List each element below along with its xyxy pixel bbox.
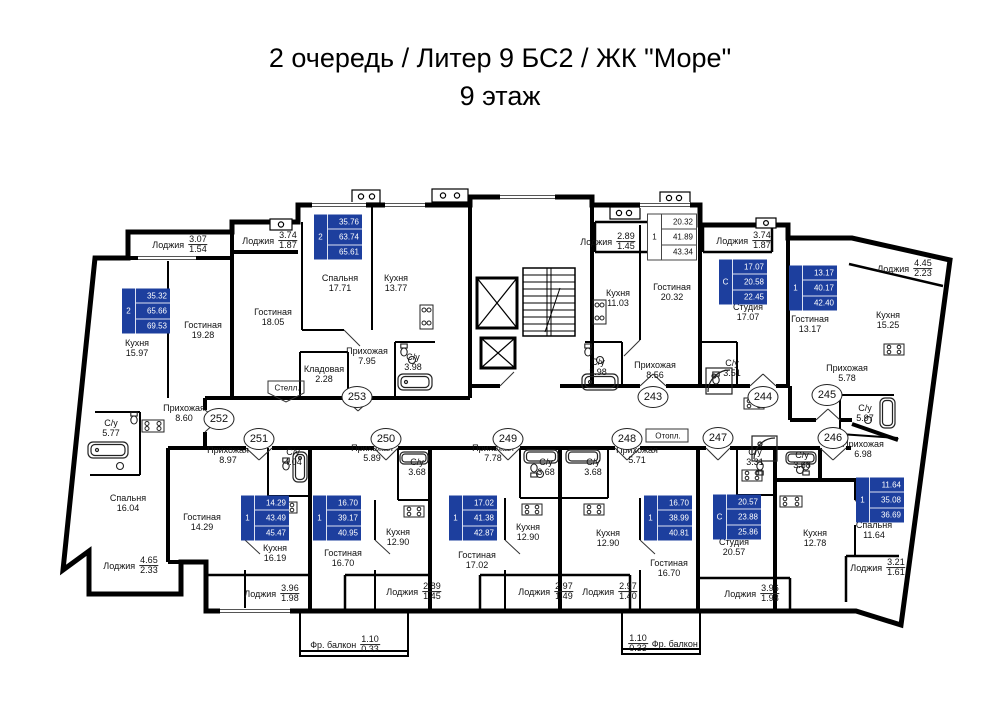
room-area: 12.90 <box>386 537 410 547</box>
loggia-label: Лоджия3.741.87 <box>242 231 297 251</box>
room-label-247-С/у: С/у3.31 <box>746 447 764 467</box>
room-label-253-Кухня: Кухня13.77 <box>384 273 408 293</box>
area-values: 20.5723.8825.86 <box>727 495 761 540</box>
area-v3: 43.34 <box>662 245 696 259</box>
area-reduced: 1.61 <box>886 569 906 578</box>
area-v3: 45.47 <box>255 526 289 540</box>
area-values: 14.2943.4945.47 <box>255 496 289 541</box>
room-label-246-С/у: С/у3.68 <box>793 450 811 470</box>
room-area: 15.25 <box>876 320 900 330</box>
room-label-245-Кухня: Кухня15.25 <box>876 310 900 330</box>
room-area: 3.98 <box>404 362 422 372</box>
room-name: Кухня <box>516 522 540 532</box>
loggia-label: Лоджия2.971.49 <box>518 582 573 602</box>
room-area: 16.70 <box>324 558 362 568</box>
room-label-245-Прихожая: Прихожая5.78 <box>826 363 868 383</box>
room-area: 5.89 <box>351 453 393 463</box>
room-area: 11.03 <box>606 298 630 308</box>
area-values: 13.1740.1742.40 <box>803 266 837 311</box>
area-values: 11.6435.0836.69 <box>870 478 904 523</box>
note-label: Отопл. <box>655 432 680 441</box>
room-name: С/у <box>858 403 872 413</box>
area-v2: 35.08 <box>870 493 904 508</box>
area-values: 16.7039.1740.95 <box>327 496 361 541</box>
loggia-label: Лоджия3.211.61 <box>850 558 905 578</box>
room-name: Гостиная <box>324 548 362 558</box>
loggia-name: Лоджия <box>518 587 550 597</box>
area-values: 16.7038.9940.81 <box>658 496 692 541</box>
room-area: 2.28 <box>304 374 344 384</box>
note-label: Стелл. <box>274 384 299 393</box>
rooms-count: 1 <box>789 266 803 311</box>
room-label-246-Спальня: Спальня11.64 <box>856 520 892 540</box>
room-name: Спальня <box>322 273 358 283</box>
loggia-label: Фр. балкон1.100.33 <box>310 635 380 655</box>
loggia-name: Лоджия <box>152 240 184 250</box>
area-reduced: 1.98 <box>280 595 300 604</box>
area-v2: 20.58 <box>733 275 767 290</box>
loggia-label: Лоджия2.891.45 <box>580 232 635 252</box>
room-area: 18.05 <box>254 317 292 327</box>
room-area: 17.07 <box>733 312 763 322</box>
unit-number-circle-249: 249 <box>493 428 524 450</box>
room-area: 5.71 <box>616 455 658 465</box>
room-label-243-Прихожая: Прихожая8.56 <box>634 360 676 380</box>
room-label-245-С/у: С/у5.97 <box>856 403 874 423</box>
area-reduced: 0.33 <box>360 646 380 655</box>
room-area: 8.60 <box>163 413 205 423</box>
room-label-251-Кухня: Кухня16.19 <box>263 543 287 563</box>
room-label-252-С/у: С/у5.77 <box>102 418 120 438</box>
area-fraction: 1.100.33 <box>360 635 380 655</box>
loggia-name: Лоджия <box>244 589 276 599</box>
unit-number-circle-248: 248 <box>612 428 643 450</box>
room-label-250-С/у: С/у3.68 <box>408 457 426 477</box>
room-area: 3.31 <box>746 457 764 467</box>
loggia-label: Лоджия3.961.98 <box>724 584 779 604</box>
area-reduced: 2.33 <box>139 567 159 576</box>
area-fraction: 4.652.33 <box>139 556 159 576</box>
area-fraction: 4.452.23 <box>913 259 933 279</box>
area-v3: 25.86 <box>727 525 761 539</box>
area-v1: 14.29 <box>255 496 289 511</box>
unit-number-circle-246: 246 <box>818 427 849 449</box>
unit-number-circle-243: 243 <box>638 386 669 408</box>
area-values: 35.3265.6669.53 <box>136 289 170 334</box>
unit-info-box-248: 116.7038.9940.81 <box>644 496 692 541</box>
unit-info-box-246: 111.6435.0836.69 <box>856 478 904 523</box>
room-area: 3.68 <box>793 460 811 470</box>
room-name: С/у <box>748 447 762 457</box>
area-v3: 36.69 <box>870 508 904 522</box>
room-area: 5.97 <box>856 413 874 423</box>
rooms-count: 1 <box>313 496 327 541</box>
room-name: С/у <box>795 450 809 460</box>
unit-info-box-251: 114.2943.4945.47 <box>241 496 289 541</box>
area-values: 17.0241.3842.87 <box>463 496 497 541</box>
loggia-name: Лоджия <box>582 587 614 597</box>
unit-number-circle-247: 247 <box>703 427 734 449</box>
area-fraction: 2.891.45 <box>616 232 636 252</box>
area-fraction: 2.971.40 <box>618 582 638 602</box>
room-name: С/у <box>539 457 553 467</box>
room-label-250-Гостиная: Гостиная16.70 <box>324 548 362 568</box>
unit-info-box-243: 120.3241.8943.34 <box>647 214 697 261</box>
loggia-name: Лоджия <box>716 236 748 246</box>
room-area: 12.78 <box>803 538 827 548</box>
area-v2: 41.38 <box>463 511 497 526</box>
floorplan-page: 2 очередь / Литер 9 БС2 / ЖК "Море" 9 эт… <box>0 0 1000 706</box>
room-area: 8.56 <box>634 370 676 380</box>
room-area: 16.19 <box>263 553 287 563</box>
room-label-248-С/у: С/у3.68 <box>584 457 602 477</box>
room-area: 19.28 <box>184 330 222 340</box>
area-reduced: 1.87 <box>752 242 772 251</box>
area-reduced: 2.23 <box>913 270 933 279</box>
area-v1: 35.76 <box>328 215 362 230</box>
room-label-252-Спальня: Спальня16.04 <box>110 493 146 513</box>
room-label-253-Прихожая: Прихожая7.95 <box>346 346 388 366</box>
room-name: Кухня <box>384 273 408 283</box>
loggia-name: Лоджия <box>850 563 882 573</box>
room-name: Кухня <box>803 528 827 538</box>
room-name: Прихожая <box>842 439 884 449</box>
room-label-252-Кухня: Кухня15.97 <box>125 338 149 358</box>
area-v1: 20.57 <box>727 495 761 510</box>
area-reduced: 1.45 <box>422 593 442 602</box>
loggia-label: Лоджия4.652.33 <box>103 556 158 576</box>
plan-labels-layer: Кухня15.97Гостиная19.28Прихожая8.60С/у5.… <box>0 0 1000 706</box>
unit-info-box-244: С17.0720.5822.45 <box>719 260 767 305</box>
room-label-243-Кухня: Кухня11.03 <box>606 288 630 308</box>
loggia-name: Лоджия <box>386 587 418 597</box>
room-label-249-Кухня: Кухня12.90 <box>516 522 540 542</box>
area-v1: 11.64 <box>870 478 904 493</box>
room-name: Гостиная <box>254 307 292 317</box>
area-v3: 22.45 <box>733 290 767 304</box>
room-area: 15.97 <box>125 348 149 358</box>
area-v2: 63.74 <box>328 230 362 245</box>
rooms-count: 1 <box>241 496 255 541</box>
room-name: Кухня <box>125 338 149 348</box>
area-v1: 13.17 <box>803 266 837 281</box>
room-label-249-Гостиная: Гостиная17.02 <box>458 550 496 570</box>
loggia-label: Лоджия3.071.54 <box>152 235 207 255</box>
room-name: Кухня <box>263 543 287 553</box>
area-v3: 42.87 <box>463 526 497 540</box>
loggia-label: 1.100.33Фр. балкон <box>628 634 698 654</box>
area-v1: 35.32 <box>136 289 170 304</box>
room-area: 17.71 <box>322 283 358 293</box>
unit-number-circle-251: 251 <box>244 428 275 450</box>
room-name: Прихожая <box>207 445 249 455</box>
room-label-251-С/у: С/у4.04 <box>284 447 302 467</box>
room-name: С/у <box>591 357 605 367</box>
room-area: 3.68 <box>537 467 555 477</box>
area-v3: 42.40 <box>803 296 837 310</box>
room-name: Прихожая <box>634 360 676 370</box>
room-area: 3.98 <box>589 367 607 377</box>
room-label-253-Гостиная: Гостиная18.05 <box>254 307 292 327</box>
unit-info-box-245: 113.1740.1742.40 <box>789 266 837 311</box>
rooms-count: 1 <box>644 496 658 541</box>
area-v1: 16.70 <box>658 496 692 511</box>
room-label-243-С/у: С/у3.98 <box>589 357 607 377</box>
room-label-251-Гостиная: Гостиная14.29 <box>183 512 221 532</box>
room-label-246-Прихожая: Прихожая6.98 <box>842 439 884 459</box>
room-area: 13.17 <box>791 324 829 334</box>
room-name: С/у <box>725 358 739 368</box>
loggia-name: Лоджия <box>877 264 909 274</box>
area-fraction: 3.211.61 <box>886 558 906 578</box>
area-fraction: 1.100.33 <box>628 634 648 654</box>
area-v1: 17.02 <box>463 496 497 511</box>
unit-info-box-249: 117.0241.3842.87 <box>449 496 497 541</box>
room-label-244-Студия: Студия17.07 <box>733 302 763 322</box>
area-v2: 39.17 <box>327 511 361 526</box>
room-label-252-Гостиная: Гостиная19.28 <box>184 320 222 340</box>
area-v2: 41.89 <box>662 230 696 245</box>
area-values: 17.0720.5822.45 <box>733 260 767 305</box>
room-name: Гостиная <box>183 512 221 522</box>
area-fraction: 3.961.98 <box>280 584 300 604</box>
area-reduced: 1.87 <box>278 242 298 251</box>
room-label-244-С/у: С/у3.51 <box>723 358 741 378</box>
room-area: 14.29 <box>183 522 221 532</box>
area-values: 35.7663.7465.61 <box>328 215 362 260</box>
unit-number-circle-253: 253 <box>342 386 373 408</box>
room-name: Кладовая <box>304 364 344 374</box>
area-fraction: 3.741.87 <box>278 231 298 251</box>
rooms-count: 2 <box>314 215 328 260</box>
area-v2: 23.88 <box>727 510 761 525</box>
unit-number-circle-244: 244 <box>748 386 779 408</box>
area-v3: 40.81 <box>658 526 692 540</box>
room-name: Прихожая <box>826 363 868 373</box>
loggia-name: Лоджия <box>242 236 274 246</box>
room-area: 6.98 <box>842 449 884 459</box>
room-area: 20.57 <box>719 547 749 557</box>
room-label-250-Кухня: Кухня12.90 <box>386 527 410 547</box>
room-name: Спальня <box>110 493 146 503</box>
room-name: Прихожая <box>163 403 205 413</box>
area-fraction: 3.741.87 <box>752 231 772 251</box>
room-area: 5.77 <box>102 428 120 438</box>
rooms-count: 1 <box>449 496 463 541</box>
room-name: Гостиная <box>653 282 691 292</box>
room-area: 13.77 <box>384 283 408 293</box>
room-label-253-Спальня: Спальня17.71 <box>322 273 358 293</box>
rooms-count: 1 <box>648 215 662 260</box>
unit-number-circle-245: 245 <box>812 384 843 406</box>
room-area: 7.95 <box>346 356 388 366</box>
area-fraction: 3.071.54 <box>188 235 208 255</box>
room-area: 17.02 <box>458 560 496 570</box>
room-name: С/у <box>104 418 118 428</box>
room-name: Прихожая <box>346 346 388 356</box>
room-name: Кухня <box>876 310 900 320</box>
room-area: 5.78 <box>826 373 868 383</box>
room-label-252-Прихожая: Прихожая8.60 <box>163 403 205 423</box>
room-name: С/у <box>586 457 600 467</box>
room-label-245-Гостиная: Гостиная13.17 <box>791 314 829 334</box>
room-name: Кухня <box>606 288 630 298</box>
area-values: 20.3241.8943.34 <box>662 215 696 260</box>
area-fraction: 3.961.98 <box>760 584 780 604</box>
area-fraction: 2.891.45 <box>422 582 442 602</box>
room-name: Кухня <box>596 528 620 538</box>
area-v3: 40.95 <box>327 526 361 540</box>
room-area: 16.04 <box>110 503 146 513</box>
loggia-label: Лоджия3.961.98 <box>244 584 299 604</box>
loggia-name: Лоджия <box>724 589 756 599</box>
area-fraction: 2.971.49 <box>554 582 574 602</box>
room-name: С/у <box>406 352 420 362</box>
room-area: 3.68 <box>408 467 426 477</box>
rooms-count: 1 <box>856 478 870 523</box>
room-name: Кухня <box>386 527 410 537</box>
area-v2: 43.49 <box>255 511 289 526</box>
area-v1: 17.07 <box>733 260 767 275</box>
room-area: 3.51 <box>723 368 741 378</box>
room-name: Гостиная <box>791 314 829 324</box>
area-reduced: 1.49 <box>554 593 574 602</box>
area-v2: 65.66 <box>136 304 170 319</box>
unit-info-box-250: 116.7039.1740.95 <box>313 496 361 541</box>
unit-number-circle-250: 250 <box>371 428 402 450</box>
room-label-253-С/у: С/у3.98 <box>404 352 422 372</box>
room-area: 7.78 <box>472 453 514 463</box>
unit-info-box-253: 235.7663.7465.61 <box>314 215 362 260</box>
loggia-name: Лоджия <box>580 237 612 247</box>
loggia-name: Фр. балкон <box>310 640 356 650</box>
room-name: С/у <box>410 457 424 467</box>
area-v2: 38.99 <box>658 511 692 526</box>
loggia-name: Фр. балкон <box>652 639 698 649</box>
room-area: 16.70 <box>650 568 688 578</box>
room-name: Гостиная <box>184 320 222 330</box>
room-label-248-Гостиная: Гостиная16.70 <box>650 558 688 578</box>
room-area: 11.64 <box>856 530 892 540</box>
room-area: 8.97 <box>207 455 249 465</box>
room-name: С/у <box>286 447 300 457</box>
area-v3: 65.61 <box>328 245 362 259</box>
rooms-count: С <box>713 495 727 540</box>
unit-info-box-252: 235.3265.6669.53 <box>122 289 170 334</box>
room-label-251-Прихожая: Прихожая8.97 <box>207 445 249 465</box>
area-reduced: 1.45 <box>616 243 636 252</box>
room-label-248-Кухня: Кухня12.90 <box>596 528 620 548</box>
area-reduced: 1.40 <box>618 593 638 602</box>
area-reduced: 1.98 <box>760 595 780 604</box>
loggia-name: Лоджия <box>103 561 135 571</box>
unit-info-box-247: С20.5723.8825.86 <box>713 495 761 540</box>
room-label-249-С/у: С/у3.68 <box>537 457 555 477</box>
loggia-label: Лоджия4.452.23 <box>877 259 932 279</box>
loggia-label: Лоджия3.741.87 <box>716 231 771 251</box>
area-reduced: 0.33 <box>628 645 648 654</box>
area-v1: 16.70 <box>327 496 361 511</box>
area-v1: 20.32 <box>662 215 696 230</box>
room-name: Гостиная <box>650 558 688 568</box>
room-area: 12.90 <box>516 532 540 542</box>
room-area: 3.68 <box>584 467 602 477</box>
rooms-count: С <box>719 260 733 305</box>
area-reduced: 1.54 <box>188 246 208 255</box>
area-v3: 69.53 <box>136 319 170 333</box>
unit-number-circle-252: 252 <box>204 408 235 430</box>
room-area: 12.90 <box>596 538 620 548</box>
room-area: 4.04 <box>284 457 302 467</box>
room-name: Гостиная <box>458 550 496 560</box>
area-v2: 40.17 <box>803 281 837 296</box>
loggia-label: Лоджия2.971.40 <box>582 582 637 602</box>
room-area: 20.32 <box>653 292 691 302</box>
room-label-247-Студия: Студия20.57 <box>719 537 749 557</box>
room-label-253-Кладовая: Кладовая2.28 <box>304 364 344 384</box>
room-label-243-Гостиная: Гостиная20.32 <box>653 282 691 302</box>
loggia-label: Лоджия2.891.45 <box>386 582 441 602</box>
room-label-246-Кухня: Кухня12.78 <box>803 528 827 548</box>
rooms-count: 2 <box>122 289 136 334</box>
